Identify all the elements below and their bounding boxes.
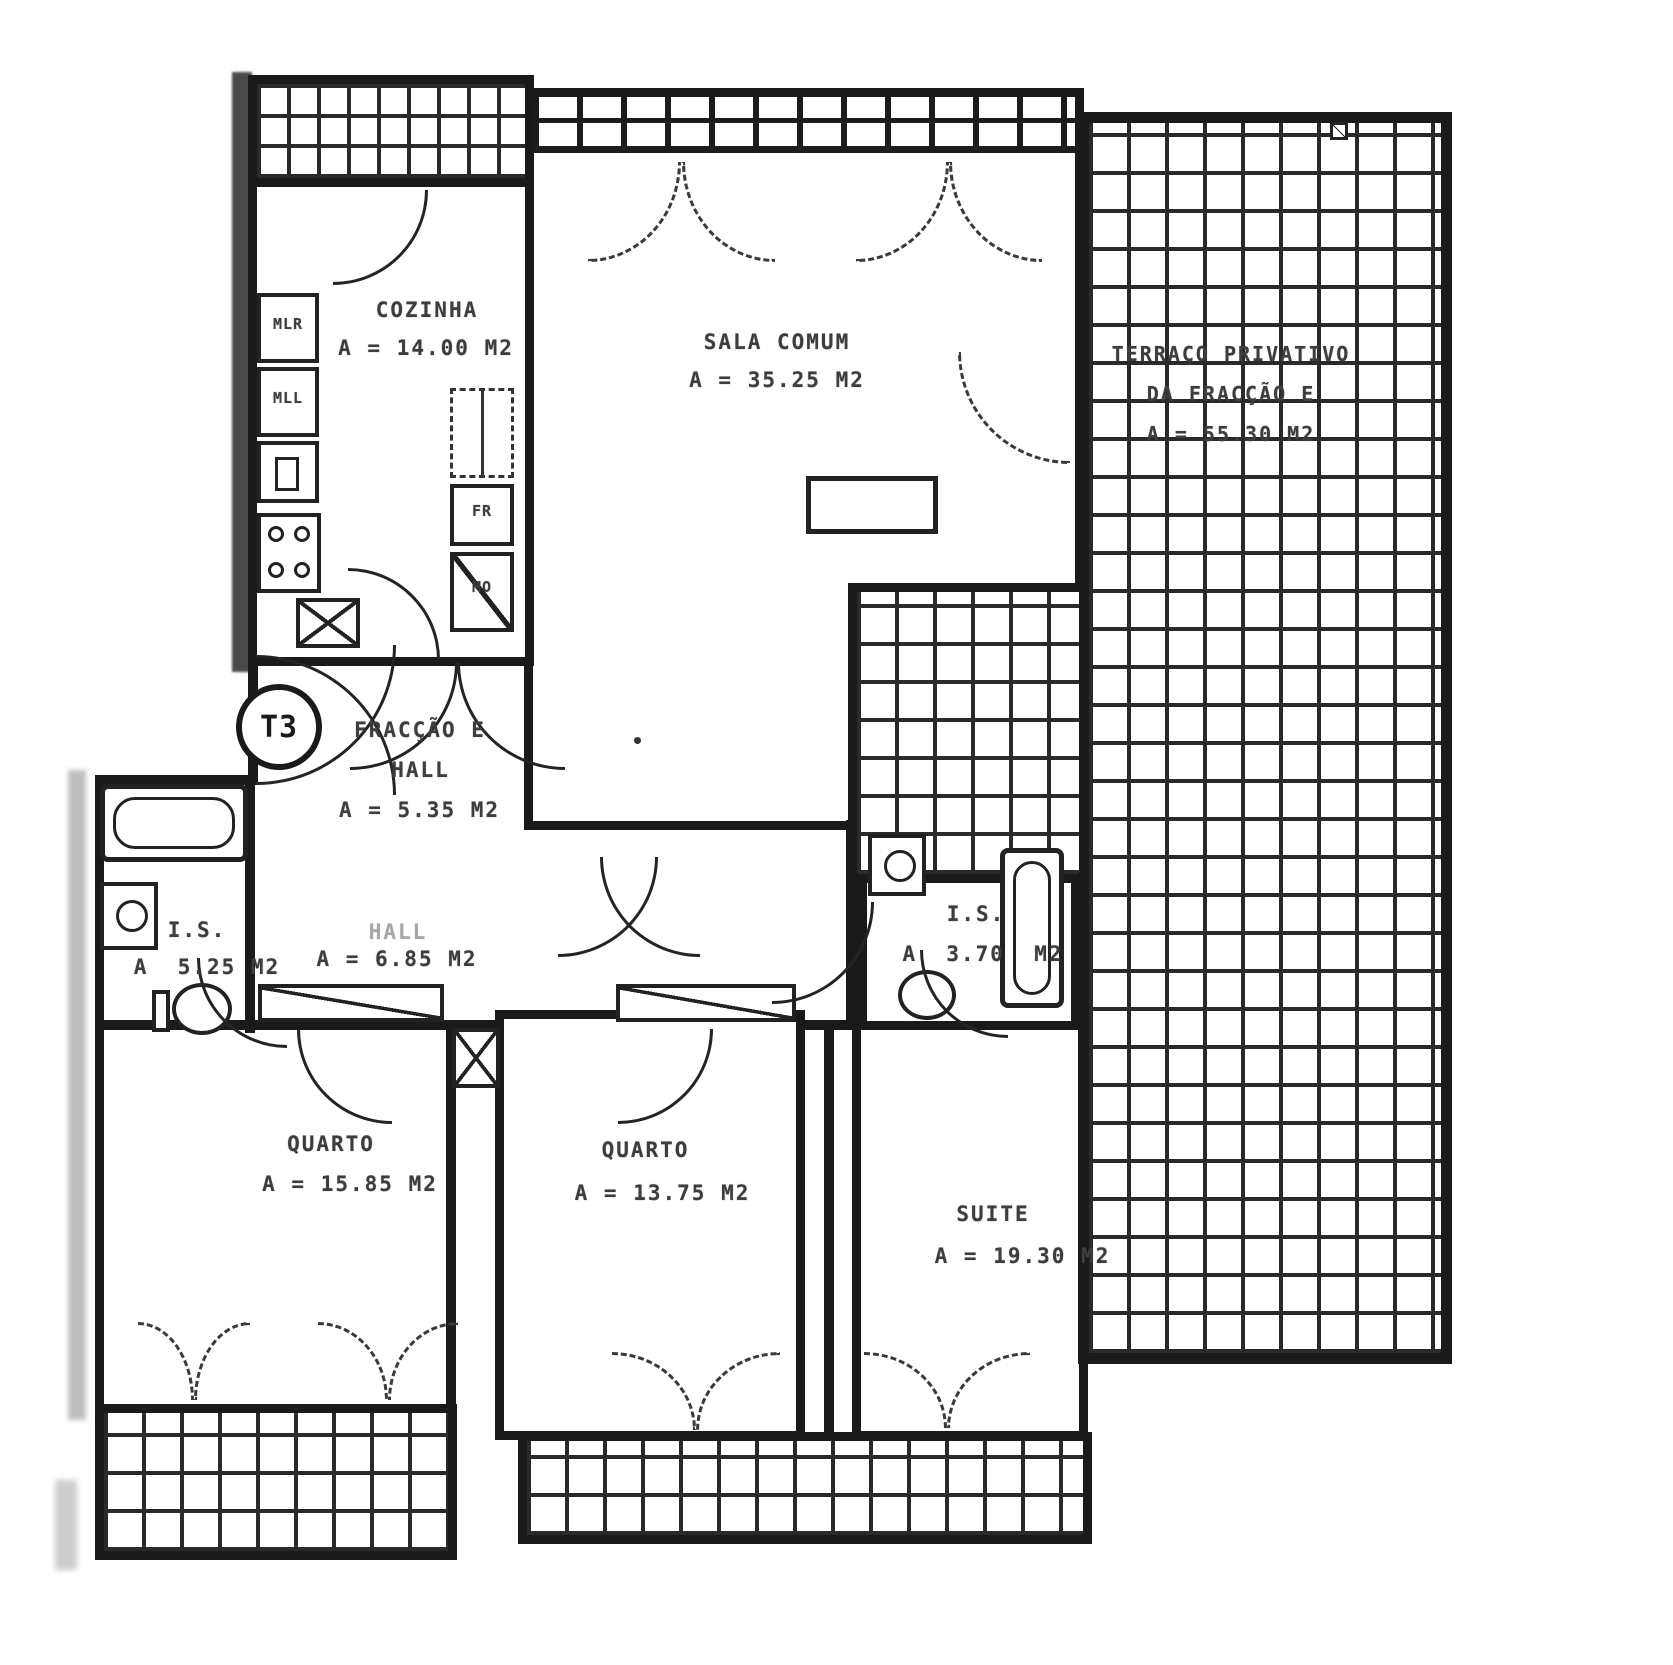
door-swing-arc [350,662,458,770]
duct-icon [452,1028,500,1088]
label-appliance-fr: FR [450,502,514,520]
label-sala-area: A = 35.25 M2 [652,368,902,392]
door-swing-arc [600,857,700,957]
floor-plan: T3 COZINHA A = 14.00 M2 SALA COMUM A = 3… [0,0,1673,1665]
label-terraco-area: A = 55.30 M2 [1104,422,1358,446]
label-appliance-mll: MLL [257,389,319,407]
sala-window-band [533,97,1079,153]
label-suite-name: SUITE [928,1202,1058,1226]
sink-icon [868,834,926,896]
label-cozinha-name: COZINHA [322,298,532,322]
balcony-top-tiles [248,75,534,187]
balcony-bottom-mid-tiles [518,1432,1092,1544]
label-hall-name: HALL [338,920,458,944]
label-is-suite-name: I.S. [936,902,1016,926]
sideboard-icon [806,476,938,534]
terrace-drain-icon [1330,122,1348,140]
label-entrada-area: A = 5.35 M2 [312,798,527,822]
label-is-esq-name: I.S. [152,918,242,942]
toilet-tank-icon [152,990,170,1032]
label-terraco-line1: TERRAÇO PRIVATIVO [1098,342,1364,366]
sink-icon [100,882,158,950]
label-quarto2-name: QUARTO [558,1138,733,1162]
label-terraco-line2: DA FRACÇÃO E [1106,382,1356,406]
label-is-suite-area: A 3.70 M2 [888,942,1078,966]
scan-smudge [55,1480,77,1570]
tall-cabinet-icon [450,388,514,478]
label-suite-area: A = 19.30 M2 [900,1244,1145,1268]
label-quarto2-area: A = 13.75 M2 [540,1181,785,1205]
stove-icon [257,513,321,593]
scan-dot [634,737,641,744]
label-quarto1-area: A = 15.85 M2 [230,1172,470,1196]
terrace-main-tiles [1078,112,1452,1364]
wall-segment [824,1020,834,1440]
counter-icon [257,441,319,503]
label-cozinha-area: A = 14.00 M2 [296,336,556,360]
balcony-bottom-left-tiles [95,1404,457,1560]
bathtub-icon [100,784,248,862]
unit-type-badge: T3 [236,684,322,770]
label-appliance-mo: MO [450,578,514,596]
bathtub-icon [1000,848,1064,1008]
label-hall-area: A = 6.85 M2 [282,947,512,971]
label-is-esq-area: A 5.25 M2 [112,955,302,979]
closet-icon [616,984,796,1022]
label-entrada-fraccao: FRACÇÃO E [330,718,510,742]
label-quarto1-name: QUARTO [246,1132,416,1156]
label-sala-name: SALA COMUM [652,330,902,354]
scan-smudge [68,770,86,1420]
label-appliance-mlr: MLR [257,315,319,333]
door-swing-arc [457,662,565,770]
unit-type-label: T3 [260,710,298,745]
room-quarto-esq-wing [95,775,455,1413]
label-entrada-hall: HALL [348,758,493,782]
